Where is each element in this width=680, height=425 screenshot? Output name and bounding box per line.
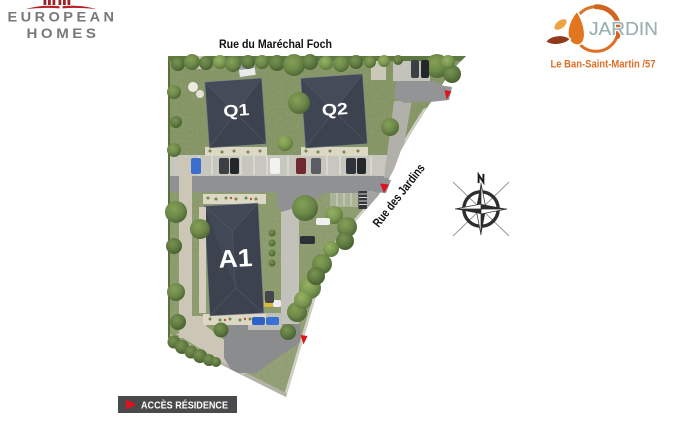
svg-text:JARDIN: JARDIN [589,19,658,39]
svg-text:A1: A1 [218,244,254,274]
svg-text:HOMES: HOMES [27,26,100,41]
svg-text:ACCÈS RÉSIDENCE: ACCÈS RÉSIDENCE [141,399,228,412]
svg-text:EUROPEAN: EUROPEAN [8,10,118,25]
svg-text:Q2: Q2 [321,100,348,120]
svg-text:Rue du Maréchal Foch: Rue du Maréchal Foch [219,37,332,51]
svg-text:Le Ban-Saint-Martin /57: Le Ban-Saint-Martin /57 [551,59,656,71]
svg-text:Q1: Q1 [223,101,250,121]
